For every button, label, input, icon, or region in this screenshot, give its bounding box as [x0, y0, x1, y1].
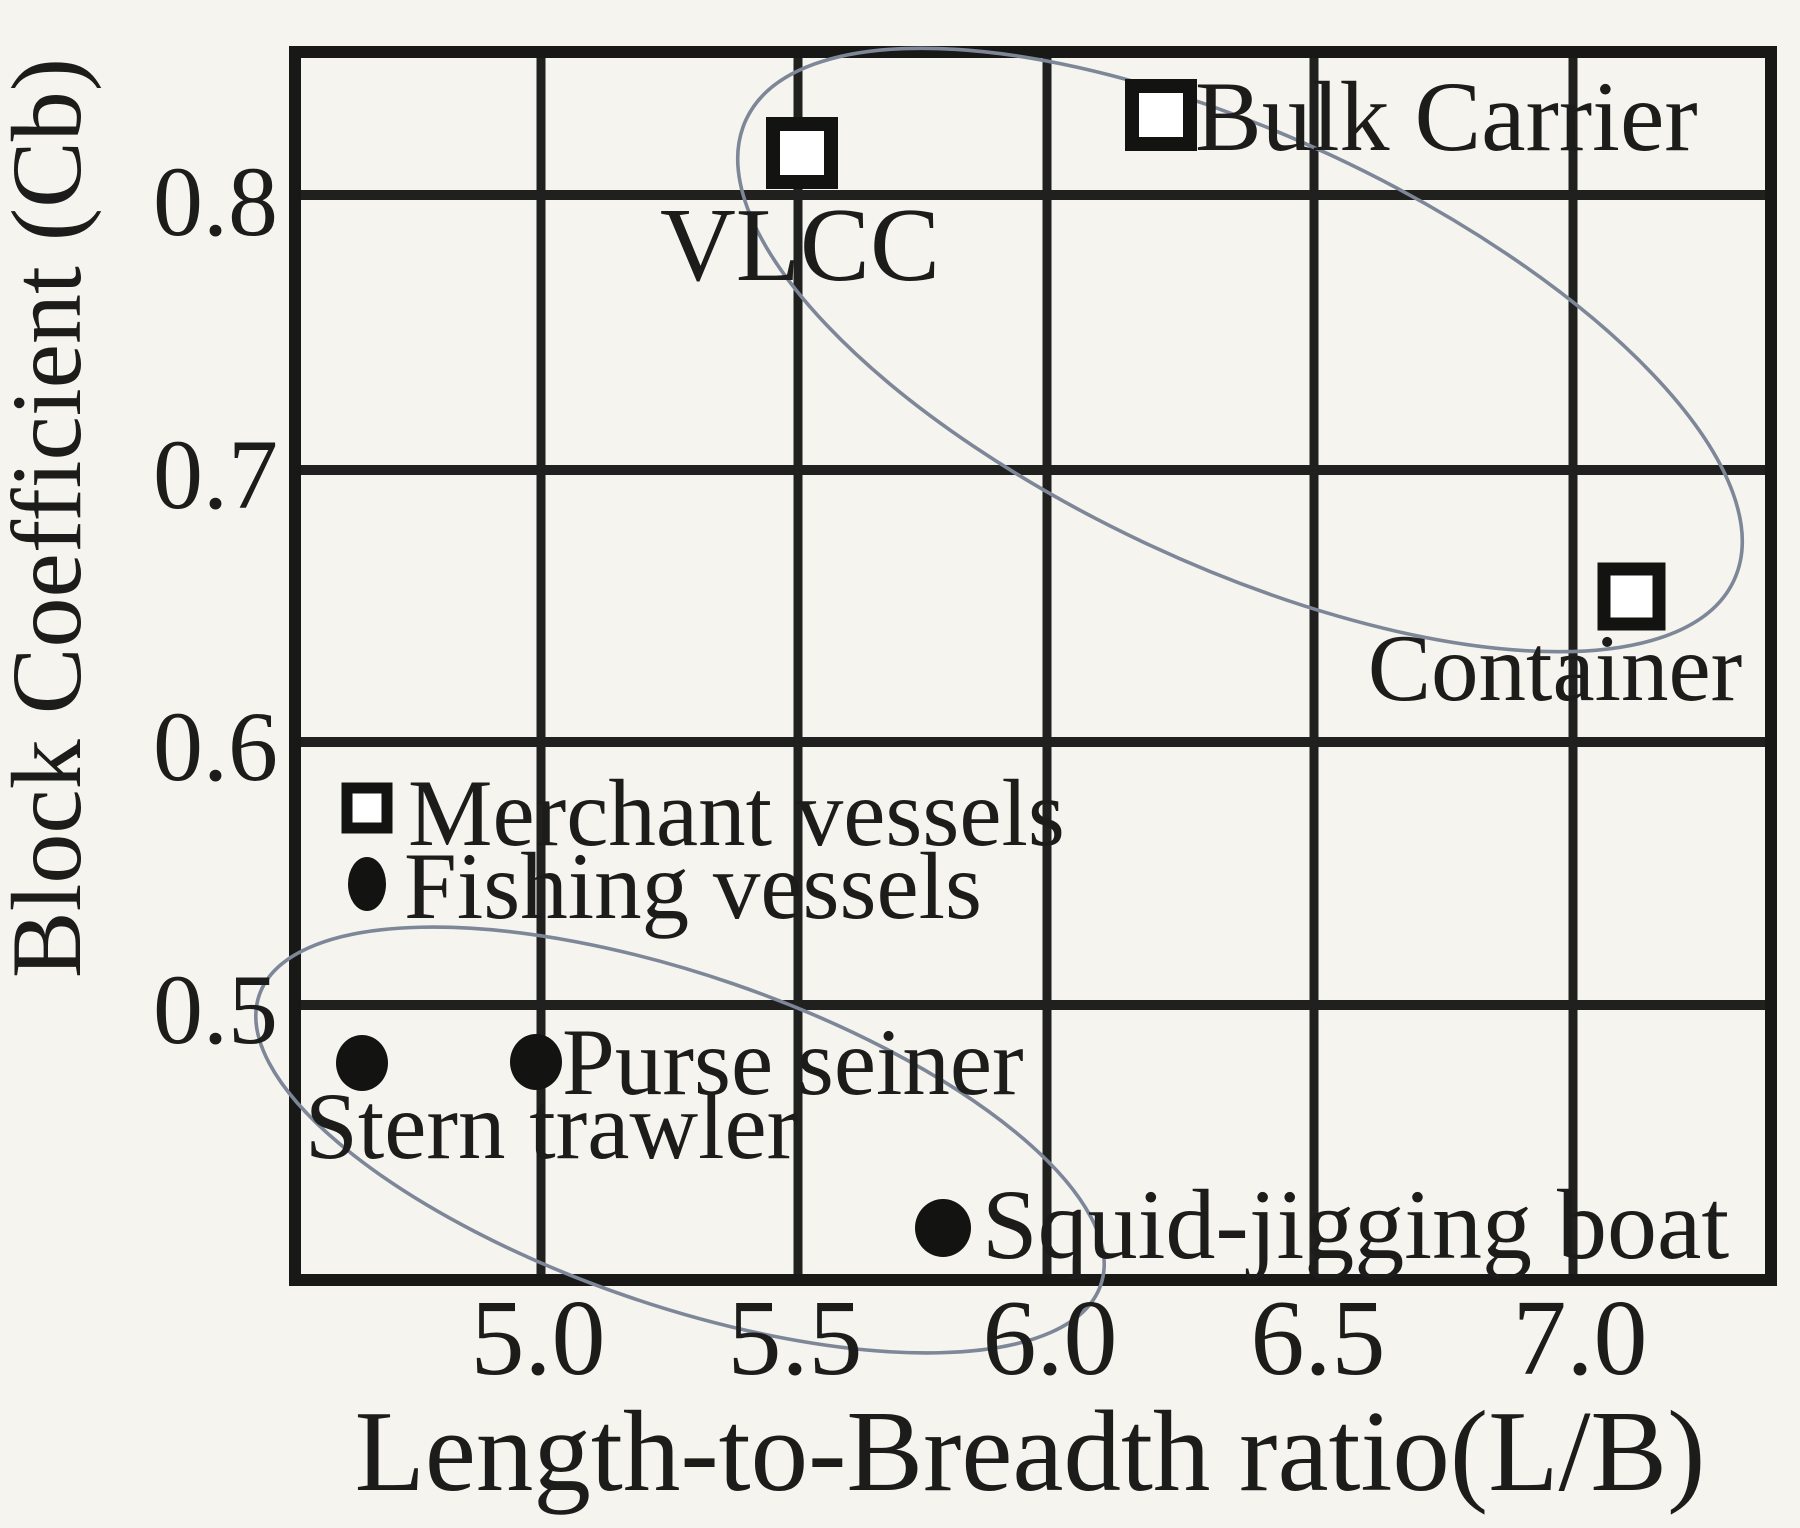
label-purse-seiner: Purse seiner — [562, 1009, 1024, 1115]
y-tick-0.7: 0.7 — [153, 419, 278, 530]
scatter-plot: VLCC Bulk Carrier Container Stern trawle… — [0, 0, 1800, 1528]
marker-bulk-carrier — [1132, 86, 1190, 144]
label-squid-jigging-boat: Squid-jigging boat — [982, 1169, 1729, 1280]
x-tick-5.0: 5.0 — [471, 1279, 606, 1398]
y-axis-tick-labels: 0.8 0.7 0.6 0.5 — [153, 146, 278, 1065]
chart-figure: VLCC Bulk Carrier Container Stern trawle… — [0, 0, 1800, 1528]
label-bulk-carrier: Bulk Carrier — [1195, 61, 1698, 172]
x-axis-title: Length-to-Breadth ratio(L/B) — [355, 1388, 1706, 1515]
y-tick-0.8: 0.8 — [153, 146, 278, 257]
x-tick-6.5: 6.5 — [1251, 1279, 1386, 1398]
y-tick-0.6: 0.6 — [153, 691, 278, 802]
marker-vlcc — [773, 124, 831, 182]
x-tick-6.0: 6.0 — [983, 1279, 1118, 1398]
legend-fishing-label: Fishing vessels — [404, 833, 982, 939]
x-tick-7.0: 7.0 — [1513, 1279, 1648, 1398]
x-axis-tick-labels: 5.0 5.5 6.0 6.5 7.0 — [471, 1279, 1648, 1398]
y-axis-title: Block Coefficient (Cb) — [0, 58, 102, 978]
marker-squid-jigging-boat — [915, 1199, 971, 1257]
x-tick-5.5: 5.5 — [728, 1279, 863, 1398]
legend: Merchant vessels Fishing vessels — [347, 760, 1065, 939]
label-container: Container — [1368, 615, 1743, 721]
legend-merchant-marker-icon — [347, 788, 387, 828]
y-tick-0.5: 0.5 — [153, 954, 278, 1065]
label-vlcc: VLCC — [660, 186, 940, 303]
legend-fishing-marker-icon — [348, 857, 386, 911]
